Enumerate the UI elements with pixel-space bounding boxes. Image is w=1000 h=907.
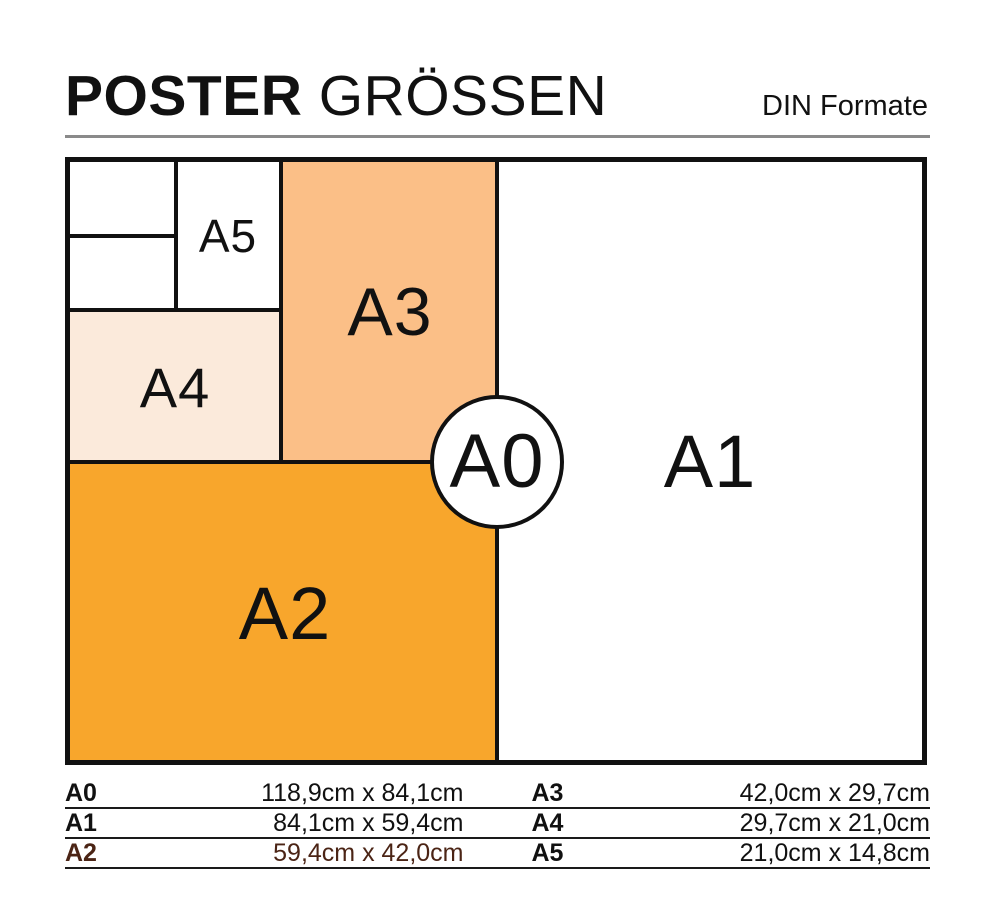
size-label-a3: A3 bbox=[532, 779, 627, 808]
divider-a6-horizontal bbox=[70, 234, 178, 238]
size-label-a5: A5 bbox=[532, 839, 627, 868]
title-underline-divider bbox=[65, 135, 930, 138]
page-title-regular: GRÖSSEN bbox=[319, 64, 608, 128]
size-table: A0 118,9cm x 84,1cm A3 42,0cm x 29,7cm A… bbox=[65, 779, 930, 869]
table-row: A0 118,9cm x 84,1cm A3 42,0cm x 29,7cm bbox=[65, 779, 930, 809]
a0-circle-badge: A0 bbox=[430, 395, 564, 529]
size-value-a3: 42,0cm x 29,7cm bbox=[627, 779, 931, 808]
subtitle-din-formate: DIN Formate bbox=[762, 92, 928, 121]
page-title-bold: POSTER bbox=[65, 64, 302, 128]
label-a3: A3 bbox=[347, 278, 432, 346]
label-a1: A1 bbox=[664, 425, 757, 499]
label-a4: A4 bbox=[140, 360, 211, 416]
poster-sizes-infographic: POSTER GRÖSSEN DIN Formate A5 A4 A3 A2 A… bbox=[0, 0, 1000, 907]
size-value-a4: 29,7cm x 21,0cm bbox=[627, 809, 931, 838]
size-label-a1: A1 bbox=[65, 809, 160, 838]
label-a5: A5 bbox=[199, 213, 257, 259]
table-row: A1 84,1cm x 59,4cm A4 29,7cm x 21,0cm bbox=[65, 809, 930, 839]
size-value-a5: 21,0cm x 14,8cm bbox=[627, 839, 931, 868]
label-a0: A0 bbox=[450, 424, 545, 500]
size-value-a2: 59,4cm x 42,0cm bbox=[160, 839, 464, 868]
size-value-a1: 84,1cm x 59,4cm bbox=[160, 809, 464, 838]
size-label-a0: A0 bbox=[65, 779, 160, 808]
din-format-diagram: A5 A4 A3 A2 A1 A0 bbox=[65, 157, 927, 765]
label-a2: A2 bbox=[239, 577, 332, 651]
divider-a3-vertical bbox=[279, 162, 283, 464]
size-value-a0: 118,9cm x 84,1cm bbox=[160, 779, 464, 808]
table-row-highlighted-a2: A2 59,4cm x 42,0cm A5 21,0cm x 14,8cm bbox=[65, 839, 930, 869]
size-label-a2: A2 bbox=[65, 839, 160, 868]
size-label-a4: A4 bbox=[532, 809, 627, 838]
page-title: POSTER GRÖSSEN bbox=[65, 68, 607, 125]
